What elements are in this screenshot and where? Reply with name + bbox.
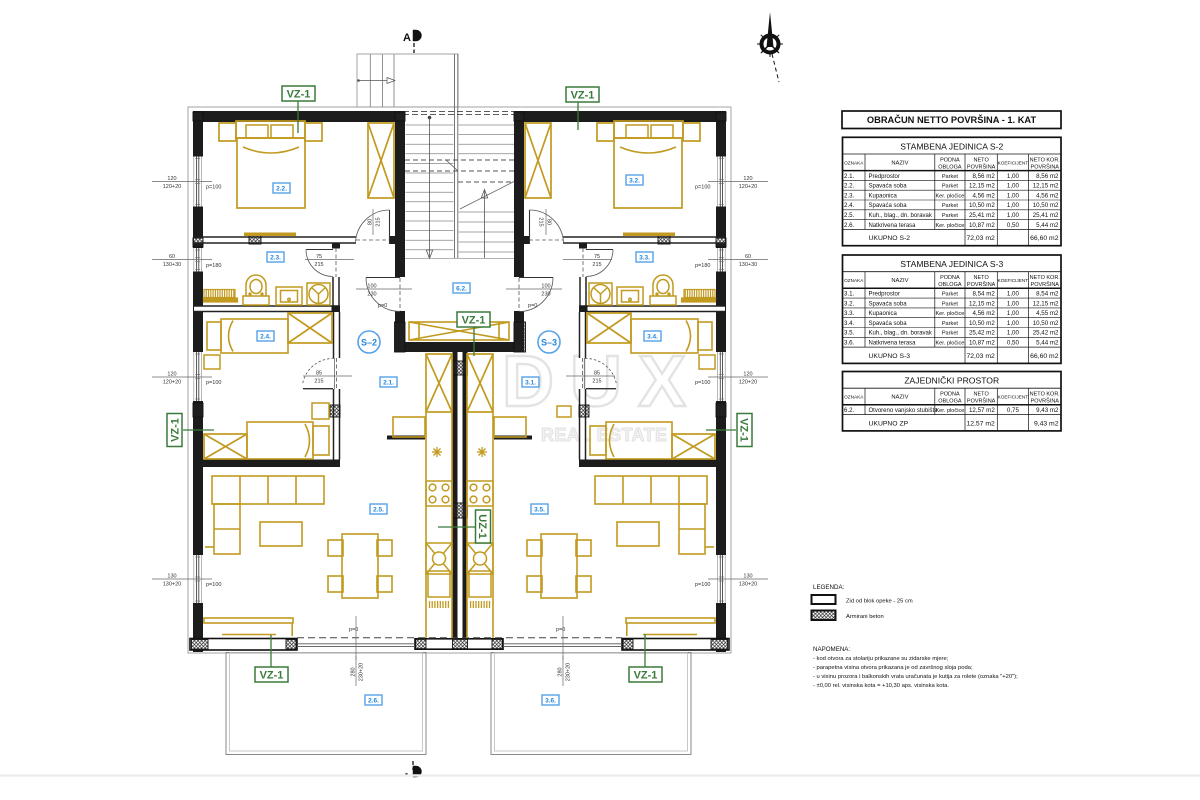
svg-text:Predprostor: Predprostor — [869, 292, 900, 298]
svg-text:120+20: 120+20 — [739, 380, 758, 386]
svg-text:p=100: p=100 — [206, 185, 221, 191]
svg-text:1,00: 1,00 — [1007, 310, 1020, 317]
svg-text:85: 85 — [594, 371, 600, 377]
svg-text:230: 230 — [367, 292, 376, 298]
svg-text:Natkrivena terasa: Natkrivena terasa — [869, 223, 917, 229]
svg-text:OZNAKA: OZNAKA — [844, 395, 864, 400]
svg-text:OBLOGA: OBLOGA — [938, 165, 962, 171]
svg-text:25,41 m2: 25,41 m2 — [969, 212, 995, 219]
svg-text:1,00: 1,00 — [1007, 291, 1020, 298]
svg-text:STAMBENA JEDINICA S-2: STAMBENA JEDINICA S-2 — [900, 141, 1003, 151]
svg-text:2.4.: 2.4. — [844, 202, 855, 209]
svg-text:100: 100 — [541, 284, 550, 290]
svg-text:3.6.: 3.6. — [844, 340, 855, 347]
svg-text:230+20: 230+20 — [566, 663, 572, 682]
svg-text:3.6.: 3.6. — [545, 698, 556, 705]
svg-text:2.1.: 2.1. — [844, 173, 855, 180]
svg-text:VZ-1: VZ-1 — [170, 418, 182, 442]
svg-text:Kupaonica: Kupaonica — [869, 193, 898, 199]
svg-text:215: 215 — [592, 262, 601, 268]
svg-text:12,57 m2: 12,57 m2 — [966, 420, 995, 427]
svg-text:1,00: 1,00 — [1007, 300, 1020, 307]
svg-text:KOEFICIJENT: KOEFICIJENT — [998, 278, 1029, 283]
svg-text:1,00: 1,00 — [1007, 192, 1020, 199]
svg-text:120: 120 — [167, 372, 176, 378]
svg-text:Parket: Parket — [942, 174, 959, 180]
svg-text:POVRŠINA: POVRŠINA — [967, 281, 996, 288]
svg-text:10,50 m2: 10,50 m2 — [1033, 202, 1059, 209]
svg-text:UKUPNO ZP: UKUPNO ZP — [869, 420, 909, 427]
svg-text:12,15 m2: 12,15 m2 — [1033, 183, 1059, 190]
svg-text:p=100: p=100 — [206, 582, 221, 588]
svg-text:85: 85 — [316, 371, 322, 377]
svg-text:POVRŠINA: POVRŠINA — [967, 164, 996, 171]
svg-text:10,50 m2: 10,50 m2 — [969, 320, 995, 327]
svg-text:POVRŠINA: POVRŠINA — [1031, 281, 1060, 288]
svg-text:Spavaća soba: Spavaća soba — [869, 203, 908, 209]
svg-text:VZ-1: VZ-1 — [634, 670, 658, 682]
svg-text:STAMBENA JEDINICA S-3: STAMBENA JEDINICA S-3 — [900, 259, 1003, 269]
svg-text:4,56 m2: 4,56 m2 — [972, 192, 995, 199]
svg-text:60: 60 — [745, 254, 751, 260]
svg-text:Spavaća soba: Spavaća soba — [869, 301, 908, 307]
svg-text:230: 230 — [541, 292, 550, 298]
svg-text:Ker. pločice: Ker. pločice — [935, 223, 964, 229]
svg-text:0,50: 0,50 — [1007, 222, 1020, 229]
svg-text:3.4.: 3.4. — [647, 334, 658, 341]
svg-text:12,15 m2: 12,15 m2 — [969, 300, 995, 307]
svg-text:215: 215 — [376, 217, 382, 226]
svg-text:1,00: 1,00 — [1007, 212, 1020, 219]
svg-text:REAL ESTATE: REAL ESTATE — [541, 425, 667, 445]
svg-text:OZNAKA: OZNAKA — [844, 278, 864, 283]
svg-text:Otvoreno vanjsko stubište: Otvoreno vanjsko stubište — [869, 408, 939, 414]
svg-text:NAZIV: NAZIV — [891, 395, 908, 401]
svg-text:- parapetna visina otvora pri: - parapetna visina otvora prikazana je o… — [813, 665, 973, 671]
svg-text:Spavaća soba: Spavaća soba — [869, 321, 908, 327]
svg-text:1,00: 1,00 — [1007, 173, 1020, 180]
svg-text:5,44 m2: 5,44 m2 — [1036, 222, 1059, 229]
svg-text:1,00: 1,00 — [1007, 330, 1020, 337]
svg-text:80: 80 — [546, 219, 552, 225]
svg-text:230+20: 230+20 — [359, 663, 365, 682]
svg-text:72,03 m2: 72,03 m2 — [966, 235, 995, 242]
svg-text:Ker. pločice: Ker. pločice — [935, 341, 964, 347]
svg-text:VZ-1: VZ-1 — [737, 418, 749, 442]
svg-text:2.6.: 2.6. — [368, 698, 379, 705]
svg-text:POVRŠINA: POVRŠINA — [967, 398, 996, 405]
svg-text:130: 130 — [743, 574, 752, 580]
svg-text:POVRŠINA: POVRŠINA — [1031, 398, 1060, 405]
svg-text:NETO: NETO — [974, 158, 990, 164]
svg-text:100: 100 — [367, 284, 376, 290]
svg-text:120: 120 — [167, 176, 176, 182]
svg-text:130: 130 — [167, 574, 176, 580]
svg-text:p=0: p=0 — [556, 627, 565, 633]
svg-text:p=180: p=180 — [206, 263, 221, 269]
svg-text:Kupaonica: Kupaonica — [869, 311, 898, 317]
svg-text:80: 80 — [368, 219, 374, 225]
svg-text:25,42 m2: 25,42 m2 — [1033, 330, 1059, 337]
svg-text:1,00: 1,00 — [1007, 183, 1020, 190]
svg-text:215: 215 — [314, 379, 323, 385]
svg-text:Parket: Parket — [942, 184, 959, 190]
svg-text:8,56 m2: 8,56 m2 — [972, 173, 995, 180]
svg-text:- u visinu prozora i balkonsk: - u visinu prozora i balkonskih vrata ur… — [813, 674, 1018, 680]
svg-text:Parket: Parket — [942, 321, 959, 327]
svg-text:p=100: p=100 — [695, 582, 710, 588]
svg-text:OBLOGA: OBLOGA — [938, 399, 962, 405]
svg-text:60: 60 — [169, 254, 175, 260]
svg-text:UZ-1: UZ-1 — [476, 514, 488, 538]
svg-text:NETO KOR.: NETO KOR. — [1030, 392, 1061, 398]
svg-text:120+20: 120+20 — [739, 184, 758, 190]
svg-text:p=0: p=0 — [378, 303, 387, 309]
svg-text:PODNA: PODNA — [940, 392, 960, 398]
svg-text:120+20: 120+20 — [163, 380, 182, 386]
svg-text:NAZIV: NAZIV — [891, 161, 908, 167]
svg-text:NETO: NETO — [974, 392, 990, 398]
svg-text:12,15 m2: 12,15 m2 — [969, 183, 995, 190]
svg-text:3.5.: 3.5. — [534, 507, 545, 514]
svg-text:p=0: p=0 — [349, 627, 358, 633]
svg-text:Ker. pločice: Ker. pločice — [935, 311, 964, 317]
svg-text:VZ-1: VZ-1 — [260, 670, 284, 682]
svg-text:1,00: 1,00 — [1007, 320, 1020, 327]
svg-text:NETO: NETO — [974, 275, 990, 281]
svg-text:PODNA: PODNA — [940, 275, 960, 281]
svg-text:120: 120 — [743, 372, 752, 378]
svg-text:UKUPNO S-3: UKUPNO S-3 — [869, 353, 911, 360]
svg-text:A: A — [403, 32, 411, 44]
svg-text:ZAJEDNIČKI PROSTOR: ZAJEDNIČKI PROSTOR — [904, 376, 999, 386]
svg-text:Kuh., blag., dn. boravak: Kuh., blag., dn. boravak — [869, 331, 933, 337]
svg-text:215: 215 — [314, 262, 323, 268]
svg-text:120: 120 — [743, 176, 752, 182]
svg-text:66,60 m2: 66,60 m2 — [1030, 353, 1059, 360]
svg-text:10,87 m2: 10,87 m2 — [969, 340, 995, 347]
svg-text:215: 215 — [592, 379, 601, 385]
svg-text:2.4.: 2.4. — [260, 334, 271, 341]
svg-text:120+20: 120+20 — [163, 184, 182, 190]
svg-text:8,54 m2: 8,54 m2 — [1036, 291, 1059, 298]
svg-text:UKUPNO S-2: UKUPNO S-2 — [869, 235, 911, 242]
svg-text:4,56 m2: 4,56 m2 — [972, 310, 995, 317]
svg-text:Armirani beton: Armirani beton — [846, 614, 884, 620]
svg-text:280: 280 — [351, 667, 357, 676]
svg-text:p=180: p=180 — [695, 263, 710, 269]
svg-text:4,55 m2: 4,55 m2 — [1036, 310, 1059, 317]
svg-text:OBLOGA: OBLOGA — [938, 282, 962, 288]
svg-text:Natkrivena terasa: Natkrivena terasa — [869, 341, 917, 347]
svg-text:VZ-1: VZ-1 — [287, 89, 311, 101]
svg-text:LEGENDA:: LEGENDA: — [813, 584, 845, 591]
svg-text:OZNAKA: OZNAKA — [844, 161, 864, 166]
svg-text:10,50 m2: 10,50 m2 — [969, 202, 995, 209]
svg-text:p=100: p=100 — [695, 185, 710, 191]
svg-text:- kod otvora za stolariju pri: - kod otvora za stolariju prikazane su z… — [813, 656, 949, 662]
svg-text:KOEFICIJENT: KOEFICIJENT — [998, 395, 1029, 400]
svg-text:3.3.: 3.3. — [639, 255, 650, 262]
svg-text:280: 280 — [558, 667, 564, 676]
svg-text:9,43 m2: 9,43 m2 — [1034, 420, 1059, 427]
svg-text:NETO KOR.: NETO KOR. — [1030, 158, 1061, 164]
svg-text:2.2.: 2.2. — [276, 186, 287, 193]
svg-text:Zid od blok opeke - 25 cm: Zid od blok opeke - 25 cm — [846, 599, 913, 605]
svg-text:8,56 m2: 8,56 m2 — [1036, 173, 1059, 180]
svg-text:p=100: p=100 — [206, 380, 221, 386]
svg-text:3.1.: 3.1. — [844, 291, 855, 298]
svg-text:66,60 m2: 66,60 m2 — [1030, 235, 1059, 242]
svg-text:Parket: Parket — [942, 213, 959, 219]
svg-text:5,44 m2: 5,44 m2 — [1036, 340, 1059, 347]
svg-text:Parket: Parket — [942, 203, 959, 209]
svg-text:OBRAČUN NETTO POVRŠINA - 1. KA: OBRAČUN NETTO POVRŠINA - 1. KAT — [867, 114, 1037, 125]
svg-text:215: 215 — [538, 217, 544, 226]
svg-text:2.6.: 2.6. — [844, 222, 855, 229]
svg-text:10,50 m2: 10,50 m2 — [1033, 320, 1059, 327]
svg-text:p=0: p=0 — [528, 303, 537, 309]
svg-text:75: 75 — [316, 254, 322, 260]
svg-text:Parket: Parket — [942, 301, 959, 307]
svg-text:0,50: 0,50 — [1007, 340, 1020, 347]
svg-text:S–2: S–2 — [361, 338, 377, 348]
svg-text:72,03 m2: 72,03 m2 — [966, 353, 995, 360]
svg-text:- ±0,00 rel. visinska kota =: - ±0,00 rel. visinska kota = +10,30 aps.… — [813, 683, 949, 689]
svg-text:2.5.: 2.5. — [844, 212, 855, 219]
svg-text:1,00: 1,00 — [1007, 202, 1020, 209]
svg-text:KOEFICIJENT: KOEFICIJENT — [998, 161, 1029, 166]
svg-text:3.3.: 3.3. — [844, 310, 855, 317]
svg-text:Parket: Parket — [942, 292, 959, 298]
svg-text:10,87 m2: 10,87 m2 — [969, 222, 995, 229]
svg-text:4,56 m2: 4,56 m2 — [1036, 192, 1059, 199]
svg-text:130+30: 130+30 — [739, 262, 758, 268]
svg-text:130+30: 130+30 — [163, 262, 182, 268]
svg-text:3.1.: 3.1. — [525, 380, 536, 387]
svg-text:NAZIV: NAZIV — [891, 278, 908, 284]
svg-text:0,75: 0,75 — [1007, 407, 1020, 414]
svg-text:2.3.: 2.3. — [844, 192, 855, 199]
svg-text:3.2.: 3.2. — [844, 300, 855, 307]
svg-text:130+20: 130+20 — [163, 582, 182, 588]
svg-text:VZ-1: VZ-1 — [462, 315, 486, 327]
svg-text:Ker. pločice: Ker. pločice — [935, 408, 964, 414]
svg-text:2.2.: 2.2. — [844, 183, 855, 190]
svg-text:12,15 m2: 12,15 m2 — [1033, 300, 1059, 307]
svg-text:PODNA: PODNA — [940, 158, 960, 164]
svg-text:p=100: p=100 — [695, 380, 710, 386]
svg-text:NETO KOR.: NETO KOR. — [1030, 275, 1061, 281]
svg-text:2.1.: 2.1. — [383, 380, 394, 387]
svg-text:130+20: 130+20 — [739, 582, 758, 588]
svg-text:Spavaća soba: Spavaća soba — [869, 184, 908, 190]
svg-text:75: 75 — [594, 254, 600, 260]
svg-text:S–3: S–3 — [541, 338, 557, 348]
svg-text:Kuh., blag., dn. boravak: Kuh., blag., dn. boravak — [869, 213, 933, 219]
svg-text:2.5.: 2.5. — [373, 507, 384, 514]
svg-text:9,43 m2: 9,43 m2 — [1036, 407, 1059, 414]
svg-text:Parket: Parket — [942, 331, 959, 337]
svg-text:6.2.: 6.2. — [844, 407, 855, 414]
svg-text:POVRŠINA: POVRŠINA — [1031, 164, 1060, 171]
svg-text:3.5.: 3.5. — [844, 330, 855, 337]
svg-text:3.2.: 3.2. — [629, 178, 640, 185]
svg-text:8,54 m2: 8,54 m2 — [972, 291, 995, 298]
svg-text:12,57 m2: 12,57 m2 — [969, 407, 995, 414]
svg-text:3.4.: 3.4. — [844, 320, 855, 327]
svg-text:NAPOMENA:: NAPOMENA: — [813, 646, 850, 653]
svg-text:25,41 m2: 25,41 m2 — [1033, 212, 1059, 219]
svg-text:6.2.: 6.2. — [456, 286, 467, 293]
svg-text:2.3.: 2.3. — [270, 255, 281, 262]
svg-text:VZ-1: VZ-1 — [571, 90, 595, 102]
svg-text:25,42 m2: 25,42 m2 — [969, 330, 995, 337]
svg-text:Predprostor: Predprostor — [869, 174, 900, 180]
svg-text:Ker. pločice: Ker. pločice — [935, 193, 964, 199]
